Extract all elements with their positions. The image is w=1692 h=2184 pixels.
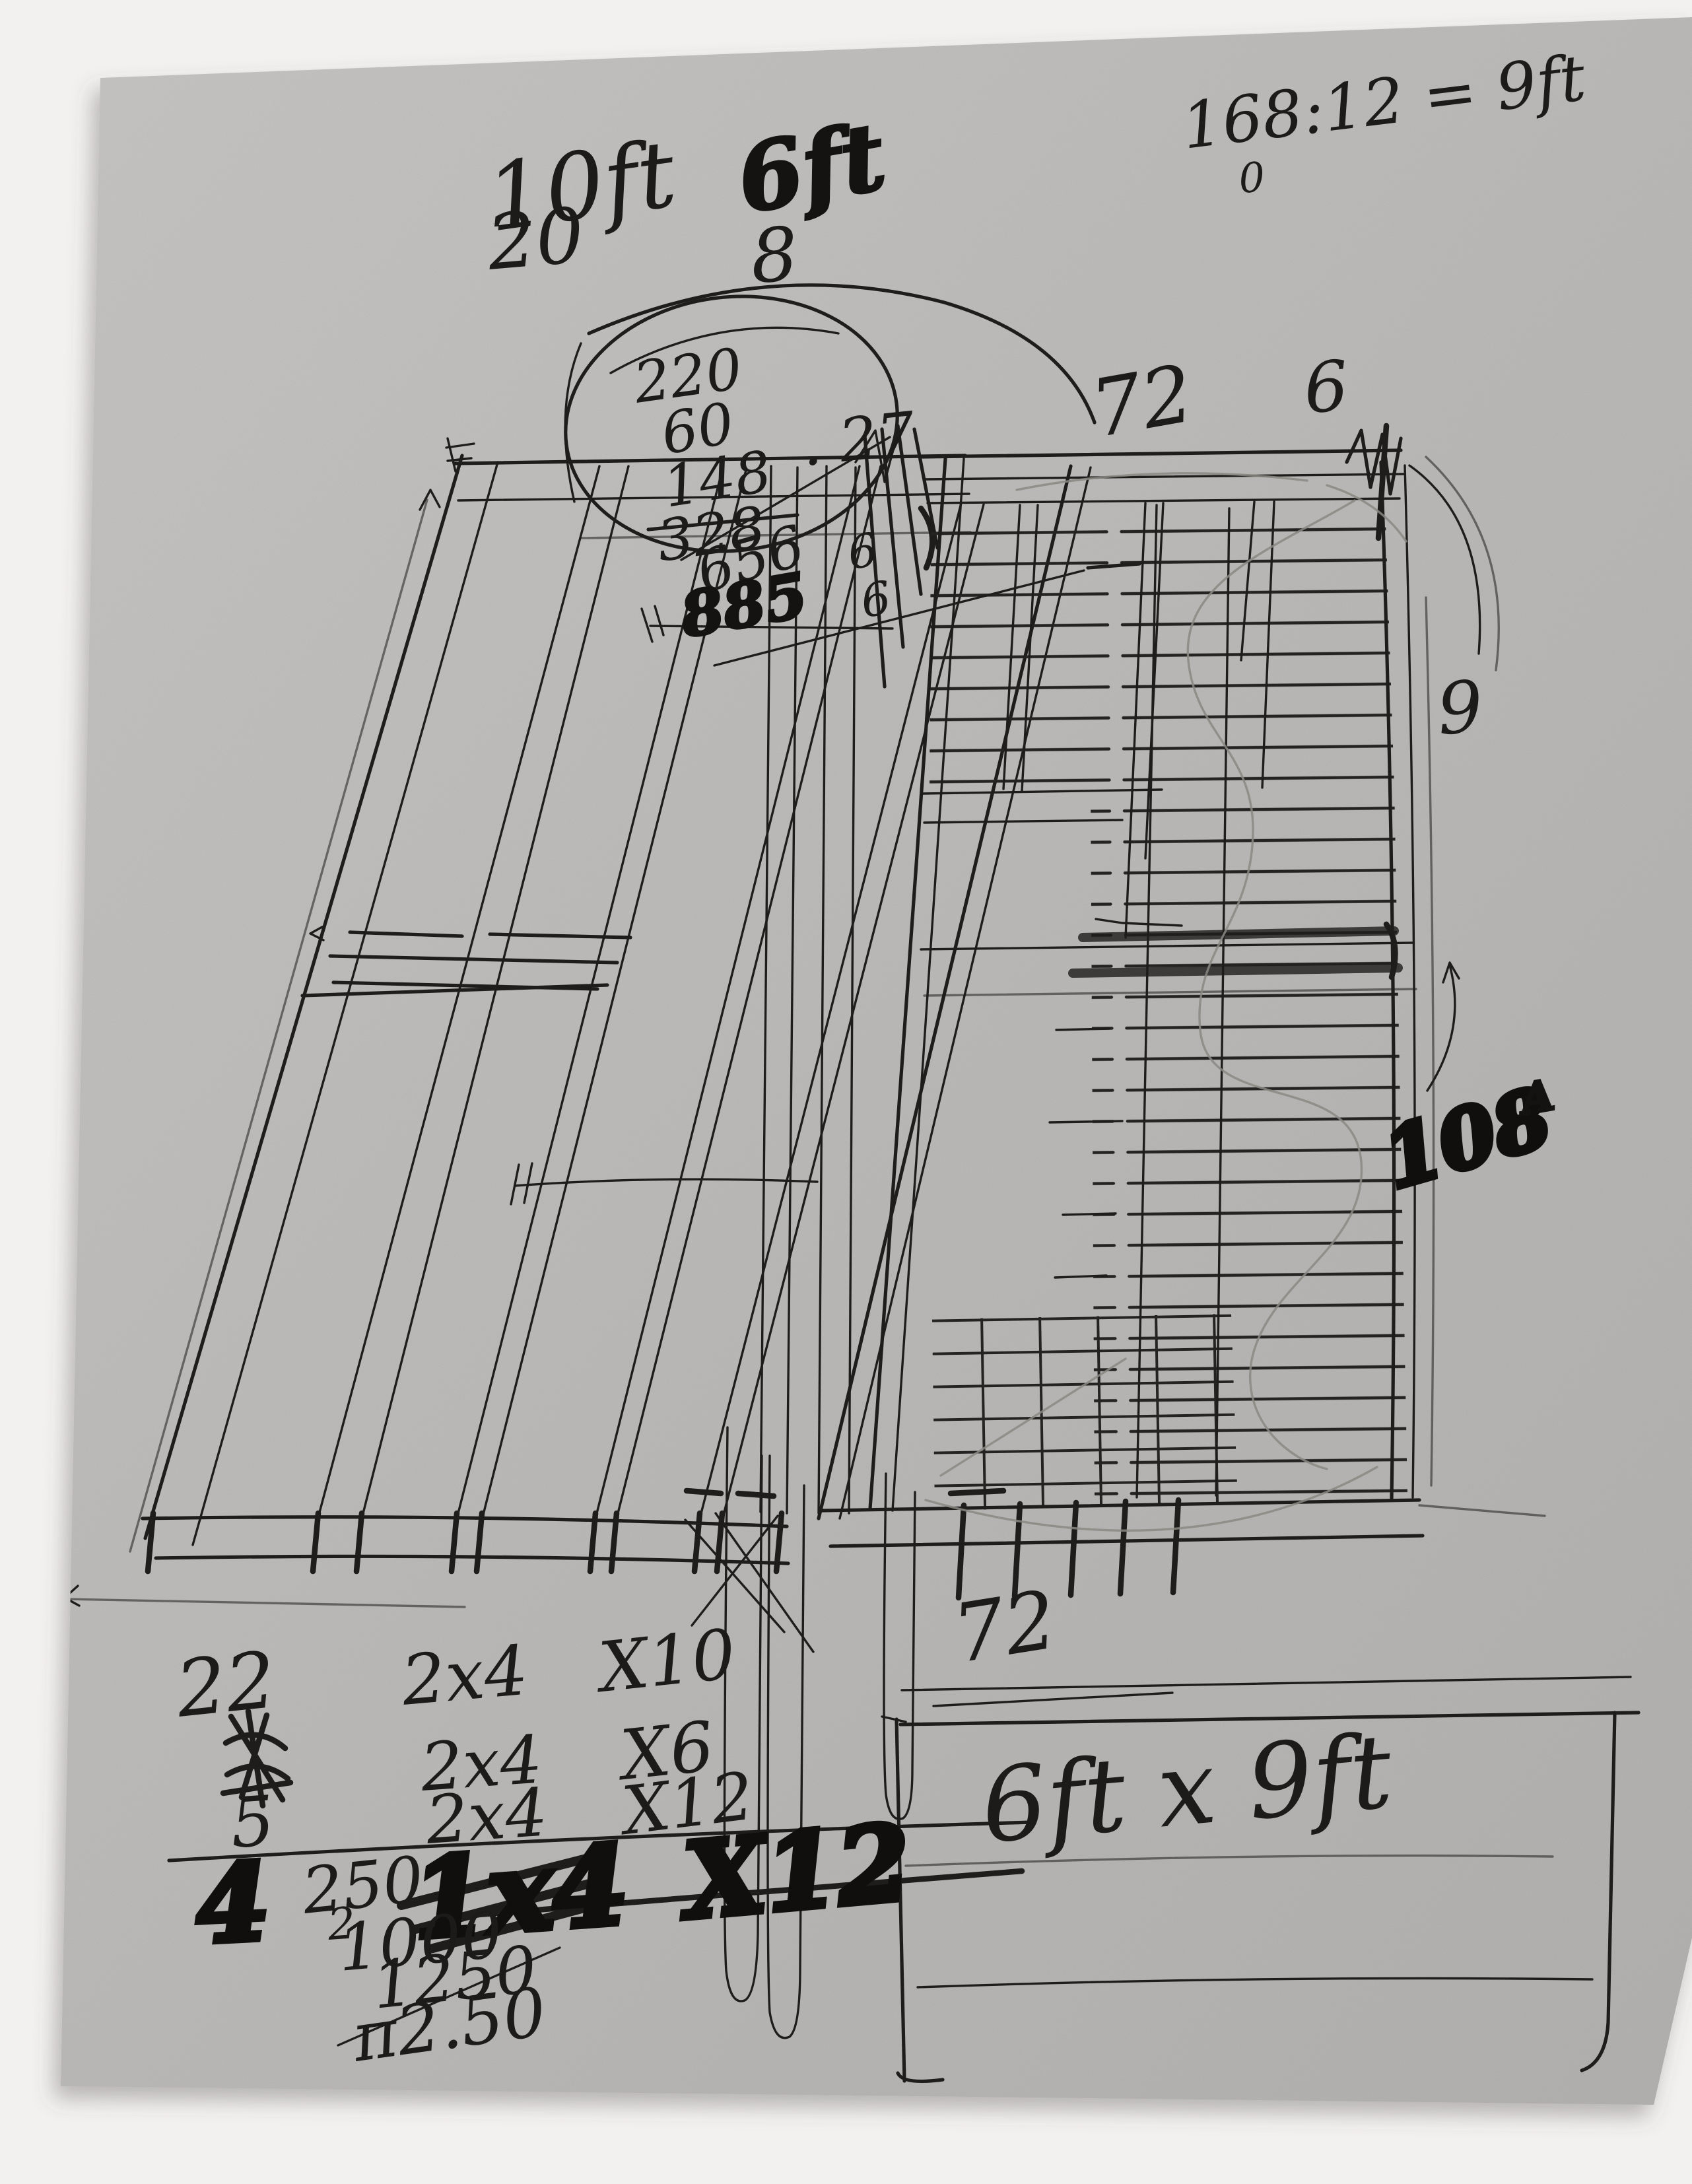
bottom-width-72: 72 <box>947 1573 1063 1682</box>
ratio-sub-zero-label: 0 <box>1237 153 1266 203</box>
right-side-9: 9 <box>1435 665 1485 751</box>
top-width-8-label: 8 <box>748 211 801 300</box>
sum-side-27: . 27 <box>798 399 919 479</box>
mat-row1-qty: 22 <box>172 1634 281 1735</box>
mat-final-qty: 4 <box>193 1839 273 1967</box>
photo-of-sketch-paper: 10ft 20 6ft 8 168:12 = 9ft 0 220 60 148 … <box>0 0 1692 2184</box>
mat-row1-size: 2x4 <box>398 1630 531 1721</box>
right-top-width-72: 72 <box>1085 348 1200 456</box>
top-width-20-label: 20 <box>483 191 588 288</box>
mat-final-count: X12 <box>673 1802 915 1944</box>
mat-row1-count: X10 <box>591 1614 739 1709</box>
right-top-6: 6 <box>1301 346 1351 429</box>
